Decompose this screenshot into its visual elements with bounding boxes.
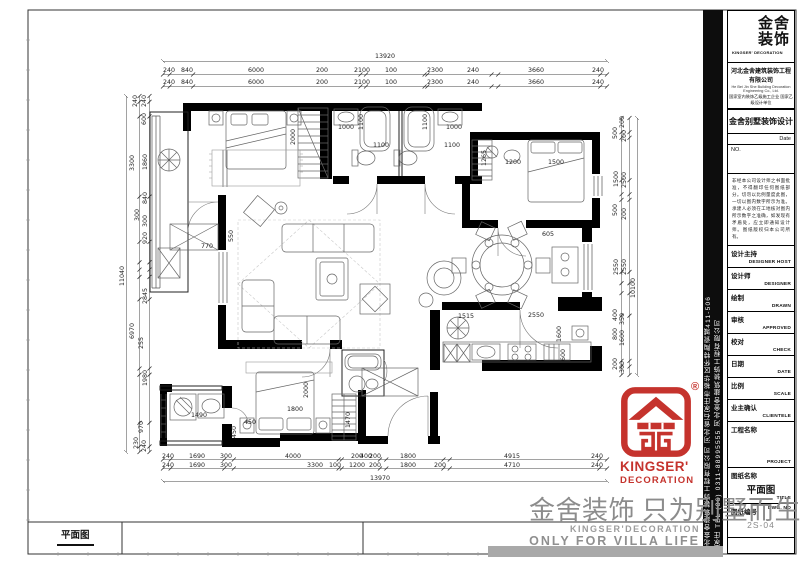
- title-block-rows: 设计主持DESIGNER HOST设计师DESIGNER绘制DRAWN审核APP…: [728, 246, 794, 504]
- company-name-en: He Bei Jin She Building Decoration Engin…: [728, 85, 794, 93]
- dim-label: 770: [201, 243, 213, 250]
- dim-label: 240: [162, 462, 174, 469]
- dim-label: 4915: [504, 453, 520, 460]
- field-label-en: DESIGNER: [764, 282, 791, 287]
- dim-label: 600: [141, 113, 148, 125]
- dim-label: 240: [141, 440, 148, 452]
- sidebar-text-2: 石家庄 TEL (86) 0311-88995555 河北金舍建筑装饰工程有限公…: [714, 10, 723, 554]
- dim-label: 13920: [375, 53, 395, 60]
- dim-label: 3660: [528, 67, 544, 74]
- titleblock-row-8: 工程名称PROJECT: [728, 422, 794, 468]
- brand-en: KINGSER' DECORATION: [732, 50, 783, 55]
- dim-label: 200: [612, 358, 619, 370]
- dim-label: 2550: [528, 312, 544, 319]
- watermark-slogan-cn: 金舍装饰 只为别墅而生。: [529, 490, 799, 527]
- dim-label: 230: [133, 437, 140, 449]
- dim-label: 200: [434, 462, 446, 469]
- title-block-logo: 金舍 装饰 KINGSER' DECORATION: [728, 11, 794, 63]
- dimension-chain: [138, 94, 142, 454]
- dimension-chain: [148, 94, 152, 454]
- field-label-cn: 图纸名称: [731, 473, 757, 480]
- brand-cn-2: 装饰: [758, 32, 790, 48]
- dim-label: 1690: [189, 453, 205, 460]
- registered-mark-icon: ®: [691, 381, 699, 393]
- field-label-cn: 审核: [731, 317, 744, 324]
- dim-label: 3660: [528, 79, 544, 86]
- field-label-cn: 设计师: [731, 273, 751, 280]
- dim-label: 840: [181, 67, 193, 74]
- dim-label: 1600: [556, 326, 563, 342]
- dim-label: 300: [134, 209, 141, 221]
- dim-label: 1515: [458, 313, 474, 320]
- dim-label: 240: [132, 95, 139, 107]
- red-logo-text-2: DECORATION: [620, 475, 694, 486]
- dim-label: 200: [316, 79, 328, 86]
- watermark-en-line1: KINGSER'DECORATION: [470, 524, 700, 534]
- field-label-en: DRAWN: [772, 304, 791, 309]
- brand-cn-1: 金舍: [758, 16, 790, 32]
- dim-label: 1100: [358, 114, 365, 130]
- dim-label: 240: [162, 453, 174, 460]
- dim-label: 1800: [400, 453, 416, 460]
- dim-label: 255: [138, 337, 145, 349]
- dim-label: 1500: [548, 159, 564, 166]
- dim-label: 200: [619, 116, 626, 128]
- dim-label: 200: [316, 67, 328, 74]
- dim-label: 3300: [307, 462, 323, 469]
- dim-label: 6000: [248, 79, 264, 86]
- dim-label: 1200: [505, 159, 521, 166]
- red-stamp-logo: ® KINGSER' DECORATION: [617, 381, 709, 495]
- dim-label: 1800: [287, 406, 303, 413]
- titleblock-row-0: 设计主持DESIGNER HOST: [728, 246, 794, 268]
- dim-label: 2300: [427, 67, 443, 74]
- dim-label: 240: [163, 79, 175, 86]
- dim-label: 1000: [446, 124, 462, 131]
- dim-label: 1500: [613, 171, 620, 187]
- dim-label: 1000: [338, 124, 354, 131]
- titleblock-row-5: 日期DATE: [728, 356, 794, 378]
- dim-label: 6000: [248, 67, 264, 74]
- drawing-name-label: 平面图: [57, 527, 94, 546]
- dim-label: 1980: [142, 370, 149, 386]
- no-label: NO.: [728, 145, 794, 174]
- dim-label: 200: [621, 130, 628, 142]
- dim-label: 605: [542, 231, 554, 238]
- dim-label: 1100: [444, 142, 460, 149]
- field-label-cn: 校对: [731, 339, 744, 346]
- titleblock-row-2: 绘制DRAWN: [728, 290, 794, 312]
- dim-label: 1690: [189, 462, 205, 469]
- titleblock-row-3: 审核APPROVED: [728, 312, 794, 334]
- dim-label: 500: [612, 204, 619, 216]
- dim-label: 1600: [619, 330, 626, 346]
- dim-label: 100: [329, 462, 341, 469]
- dim-label: 500: [612, 127, 619, 139]
- dim-label: 200: [621, 208, 628, 220]
- red-logo-text-1: KINGSER': [620, 459, 689, 474]
- dim-label: 1200: [349, 462, 365, 469]
- dim-label: 840: [142, 192, 149, 204]
- dim-label: 600: [560, 349, 567, 361]
- dim-label: 300: [220, 462, 232, 469]
- dim-label: 1800: [400, 462, 416, 469]
- dim-label: 2550: [613, 259, 620, 275]
- dim-label: 840: [181, 79, 193, 86]
- dim-label: 200: [369, 462, 381, 469]
- dim-label: 300: [142, 215, 149, 227]
- dim-label: 2000: [303, 382, 310, 398]
- dim-label: 4000: [285, 453, 301, 460]
- dim-label: 240: [467, 67, 479, 74]
- dim-label: 240: [591, 462, 603, 469]
- field-label-cn: 比例: [731, 383, 744, 390]
- dim-label: 240: [141, 95, 148, 107]
- dim-label: 2500: [621, 172, 628, 188]
- dim-label: 13970: [370, 475, 390, 482]
- dim-label: 4710: [504, 462, 520, 469]
- field-label-en: APPROVED: [762, 326, 791, 331]
- dim-label: 450: [244, 419, 256, 426]
- dim-label: 350: [619, 313, 626, 325]
- dimension-chain: [628, 116, 632, 377]
- field-label-cn: 日期: [731, 361, 744, 368]
- titleblock-row-1: 设计师DESIGNER: [728, 268, 794, 290]
- dim-label: 1265: [481, 150, 488, 166]
- disclaimer-text: 非经本公司设计师之书面批准，不得翻印任何图纸部分。切勿以比例量度此图，一切以图内…: [728, 174, 794, 246]
- dim-label: 200: [369, 453, 381, 460]
- dim-label: 920: [142, 232, 149, 244]
- project-series-title: 金舍别墅装饰设计: [728, 110, 794, 134]
- dim-label: 2100: [354, 67, 370, 74]
- dim-label: 3300: [129, 155, 136, 171]
- company-name: 河北金舍建筑装饰工程有限公司: [728, 63, 794, 85]
- dim-label: 1860: [142, 154, 149, 170]
- field-label-cn: 设计主持: [731, 251, 757, 258]
- field-label-en: PROJECT: [767, 460, 791, 465]
- dim-label: 2100: [354, 79, 370, 86]
- dim-label: 400: [612, 309, 619, 321]
- dim-label: 240: [467, 79, 479, 86]
- dim-label: 2300: [427, 79, 443, 86]
- dim-label: 240: [163, 67, 175, 74]
- dim-label: 1490: [191, 412, 207, 419]
- field-label-cn: 工程名称: [731, 427, 757, 434]
- dim-label: 2550: [621, 259, 628, 275]
- dim-label: 300: [220, 453, 232, 460]
- dim-label: 450: [231, 426, 238, 438]
- dim-label: 300: [619, 361, 626, 373]
- dim-label: 2000: [290, 129, 297, 145]
- dim-label: 10100: [630, 278, 637, 298]
- watermark-en-line2: ONLY FOR VILLA LIFE: [470, 534, 700, 548]
- dim-label: 1100: [373, 142, 389, 149]
- dim-label: 100: [385, 67, 397, 74]
- dim-label: 1470: [345, 412, 352, 428]
- dim-label: 240: [592, 67, 604, 74]
- drawing-sheet: 1392024084060002002100100230024036602402…: [0, 0, 800, 566]
- field-label-en: SCALE: [774, 392, 791, 397]
- date-label: Date: [728, 134, 794, 145]
- company-certs: 国家室内装饰乙级施工企业 国家乙级设计单位: [728, 93, 794, 110]
- dimension-lines: [124, 59, 639, 483]
- titleblock-row-6: 比例SCALE: [728, 378, 794, 400]
- field-label-en: DESIGNER HOST: [749, 260, 791, 265]
- field-label-cn: 业主确认: [731, 405, 757, 412]
- watermark-slogan-en: KINGSER'DECORATION ONLY FOR VILLA LIFE: [470, 524, 700, 548]
- dim-label: 970: [138, 421, 145, 433]
- field-label-cn: 绘制: [731, 295, 744, 302]
- titleblock-row-7: 业主确认CLIENTELE: [728, 400, 794, 422]
- dim-label: 11040: [119, 266, 126, 286]
- title-block: 金舍 装饰 KINGSER' DECORATION 河北金舍建筑装饰工程有限公司…: [727, 10, 795, 554]
- dim-label: 100: [385, 79, 397, 86]
- field-label-en: CHECK: [773, 348, 791, 353]
- dim-label: 800: [612, 328, 619, 340]
- titleblock-row-4: 校对CHECK: [728, 334, 794, 356]
- dim-label: 6970: [129, 323, 136, 339]
- dim-label: 240: [592, 79, 604, 86]
- dim-label: 550: [228, 230, 235, 242]
- field-label-en: CLIENTELE: [763, 414, 791, 419]
- field-label-en: DATE: [777, 370, 791, 375]
- dim-label: 1100: [422, 114, 429, 130]
- dim-label: 2845: [142, 288, 149, 304]
- dim-label: 240: [591, 453, 603, 460]
